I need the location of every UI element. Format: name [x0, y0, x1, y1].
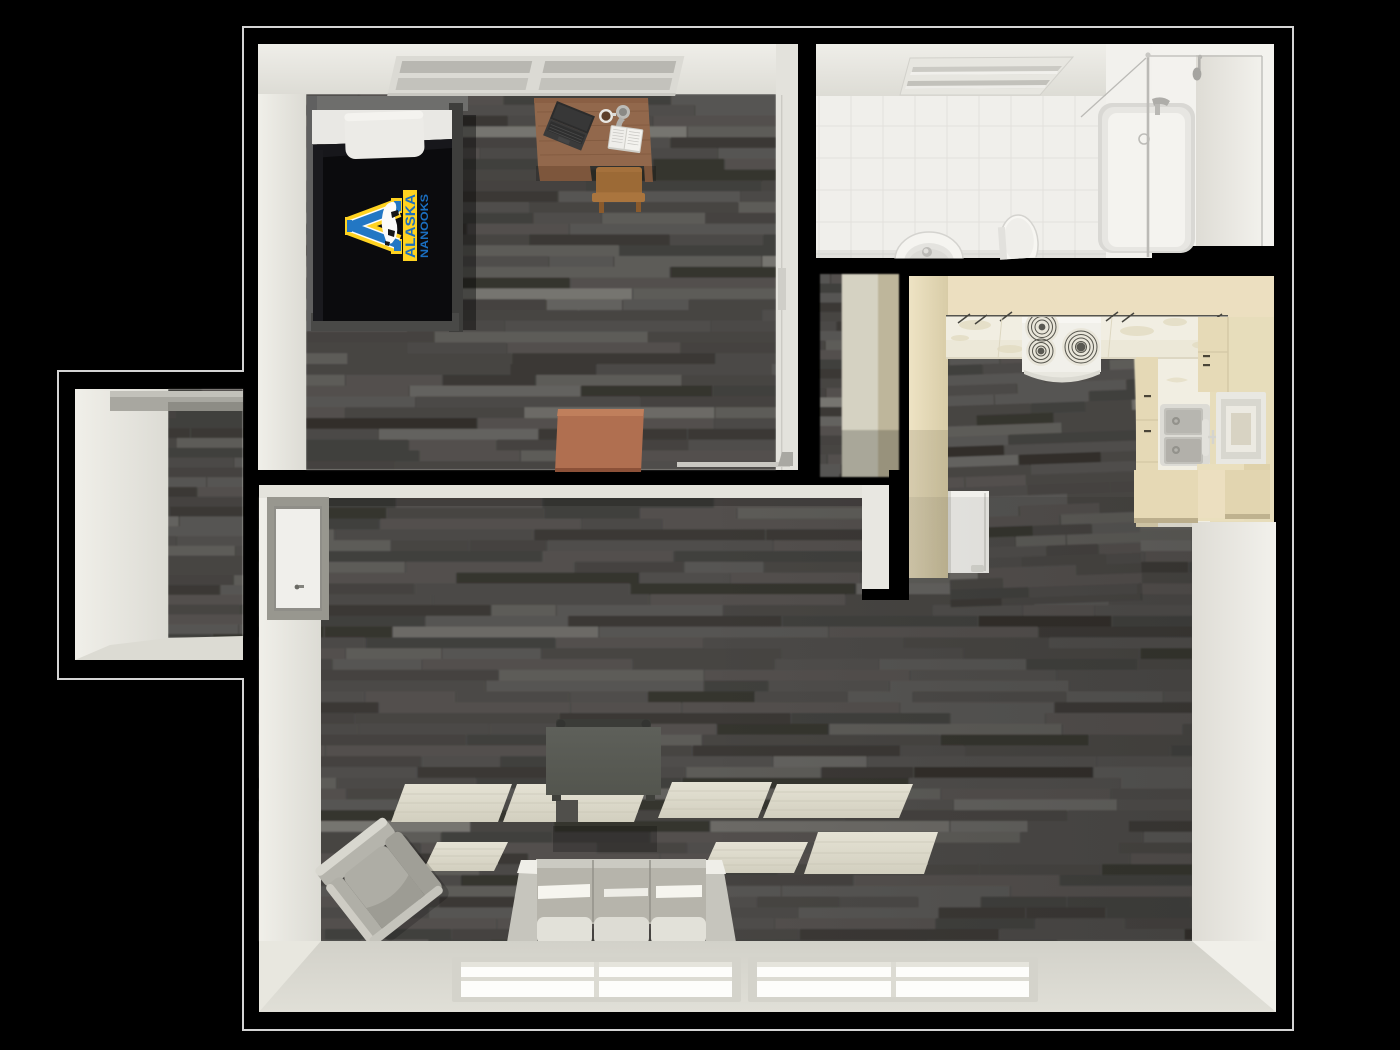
svg-text:ALASKA: ALASKA [403, 194, 418, 258]
svg-text:NANOOKS: NANOOKS [419, 194, 431, 258]
